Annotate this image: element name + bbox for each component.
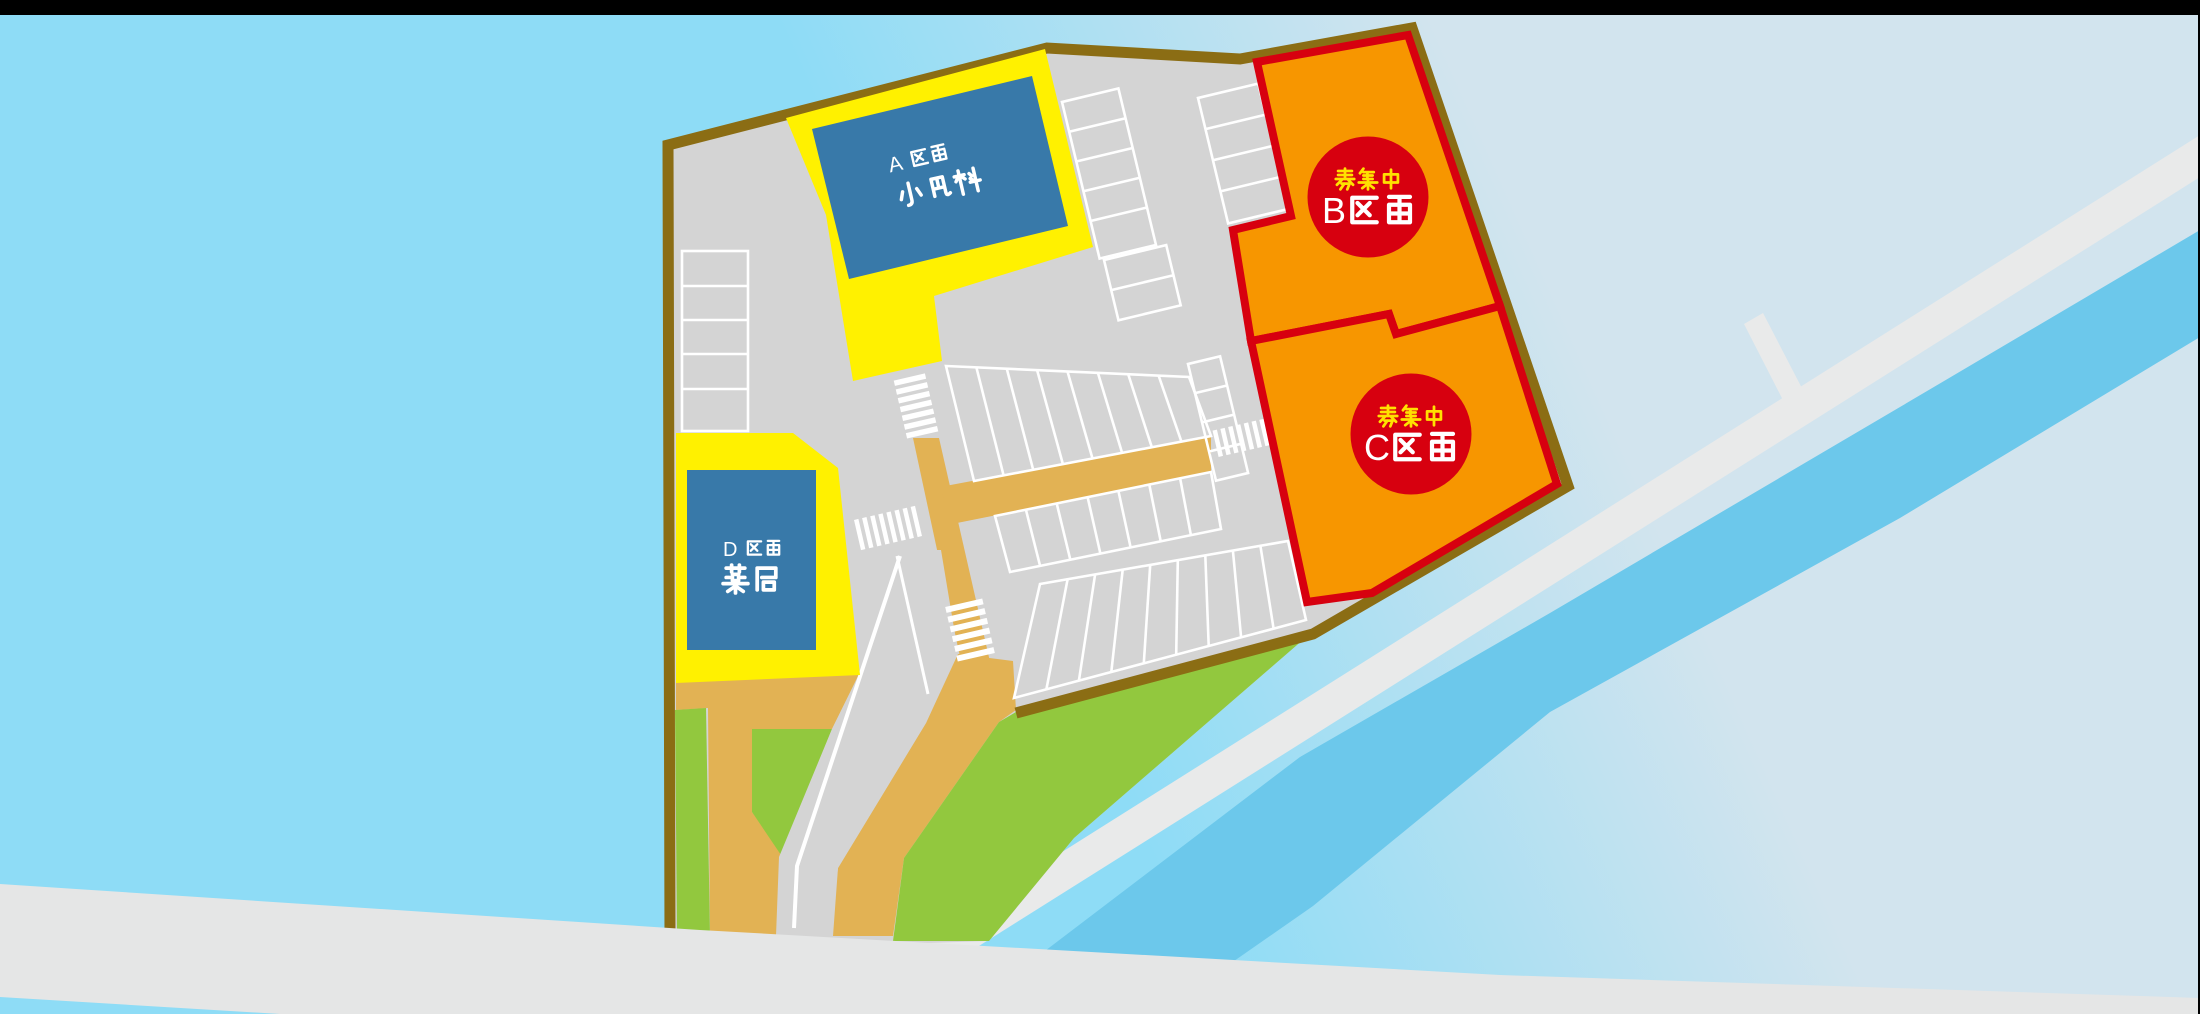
svg-text:B: B bbox=[1322, 190, 1346, 231]
svg-text:D: D bbox=[723, 539, 737, 561]
svg-text:C: C bbox=[1364, 427, 1390, 468]
